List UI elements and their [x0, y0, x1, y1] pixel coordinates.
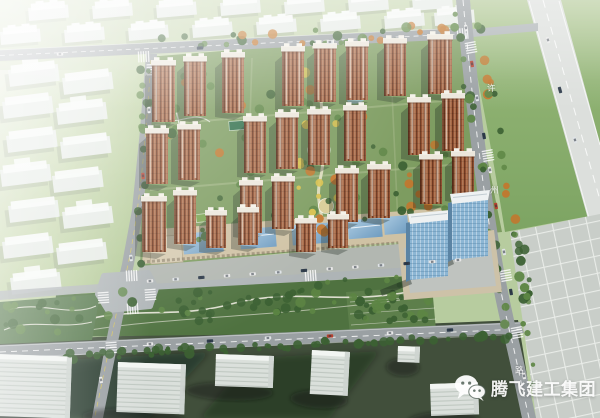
rendering-canvas [0, 0, 600, 418]
haze-overlay [0, 0, 600, 418]
rendering-screenshot: 许 州 路 腾飞建工集团 [0, 0, 600, 418]
